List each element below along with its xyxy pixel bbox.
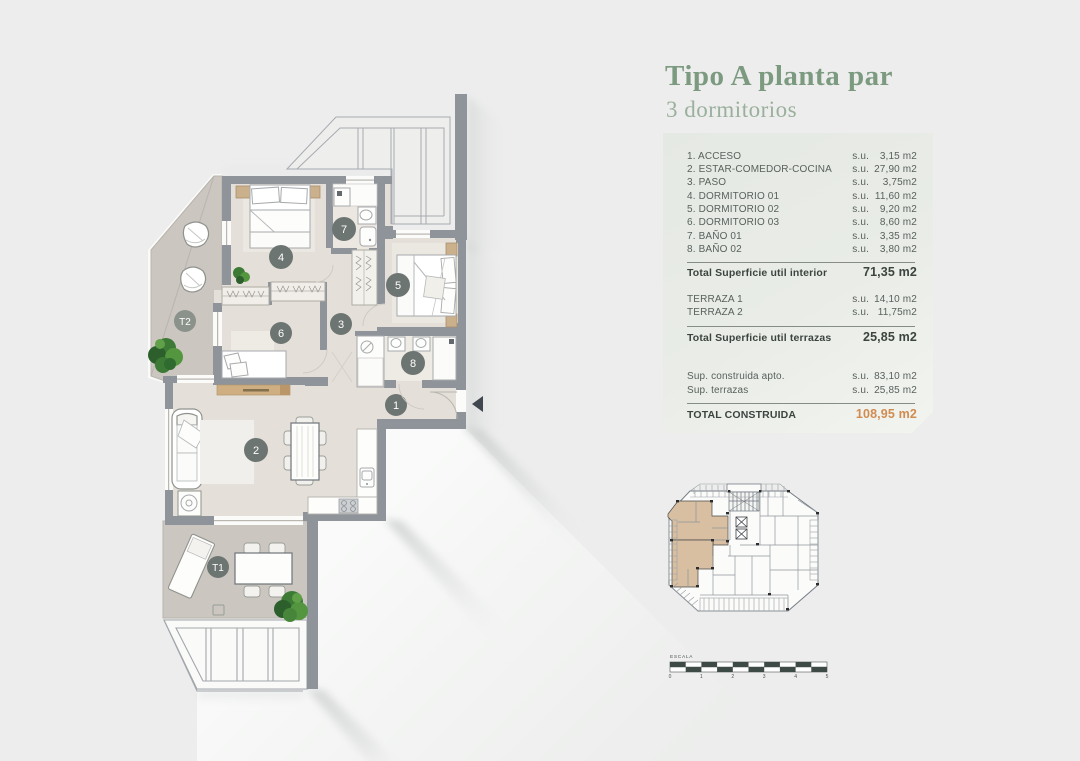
svg-text:6: 6 <box>278 328 284 340</box>
svg-text:ESCALA: ESCALA <box>670 654 693 660</box>
svg-text:5: 5 <box>826 674 829 680</box>
svg-text:1: 1 <box>700 674 703 680</box>
svg-text:2: 2 <box>253 445 259 457</box>
svg-text:3: 3 <box>763 674 766 680</box>
svg-text:2: 2 <box>731 674 734 680</box>
svg-text:4: 4 <box>278 252 284 264</box>
svg-text:T2: T2 <box>179 317 191 328</box>
svg-text:4: 4 <box>794 674 797 680</box>
svg-text:7: 7 <box>341 224 347 236</box>
svg-text:1: 1 <box>393 400 399 412</box>
svg-text:8: 8 <box>410 358 416 370</box>
svg-text:T1: T1 <box>212 563 224 574</box>
svg-text:0: 0 <box>669 674 672 680</box>
svg-text:5: 5 <box>395 280 401 292</box>
svg-text:3: 3 <box>338 319 344 331</box>
